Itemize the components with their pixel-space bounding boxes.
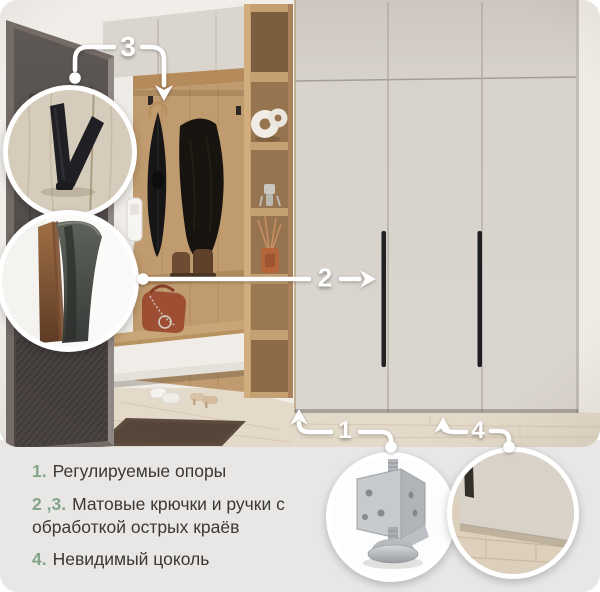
callout-number-1: 1 — [338, 417, 351, 445]
legend-item-text: Матовые крючки и ручки с обработкой остр… — [32, 494, 285, 537]
inset-handle-detail — [0, 210, 139, 352]
handle-closeup — [2, 215, 134, 347]
hook-closeup — [8, 90, 132, 214]
legend-item-text: Невидимый цоколь — [53, 549, 210, 569]
inset-plinth-detail — [447, 447, 579, 579]
legend-item-2-3: 2 ,3.Матовые крючки и ручки с обработкой… — [32, 493, 362, 539]
legend-item-1: 1.Регулируемые опоры — [32, 460, 362, 483]
legend-item-number: 2 ,3. — [32, 494, 66, 514]
adjustable-foot-closeup — [331, 457, 451, 577]
legend-item-number: 4. — [32, 549, 47, 569]
callout-number-3: 3 — [120, 31, 136, 63]
legend-item-text: Регулируемые опоры — [53, 461, 227, 481]
callout-number-4: 4 — [471, 417, 484, 445]
callout-number-2: 2 — [318, 263, 332, 294]
inset-hook-detail — [3, 85, 137, 219]
legend-item-number: 1. — [32, 461, 47, 481]
plinth-closeup — [452, 452, 574, 574]
product-annotation-card: 1.Регулируемые опоры 2 ,3.Матовые крючки… — [0, 0, 600, 592]
inset-foot-detail — [326, 452, 456, 582]
legend-item-4: 4.Невидимый цоколь — [32, 548, 362, 571]
